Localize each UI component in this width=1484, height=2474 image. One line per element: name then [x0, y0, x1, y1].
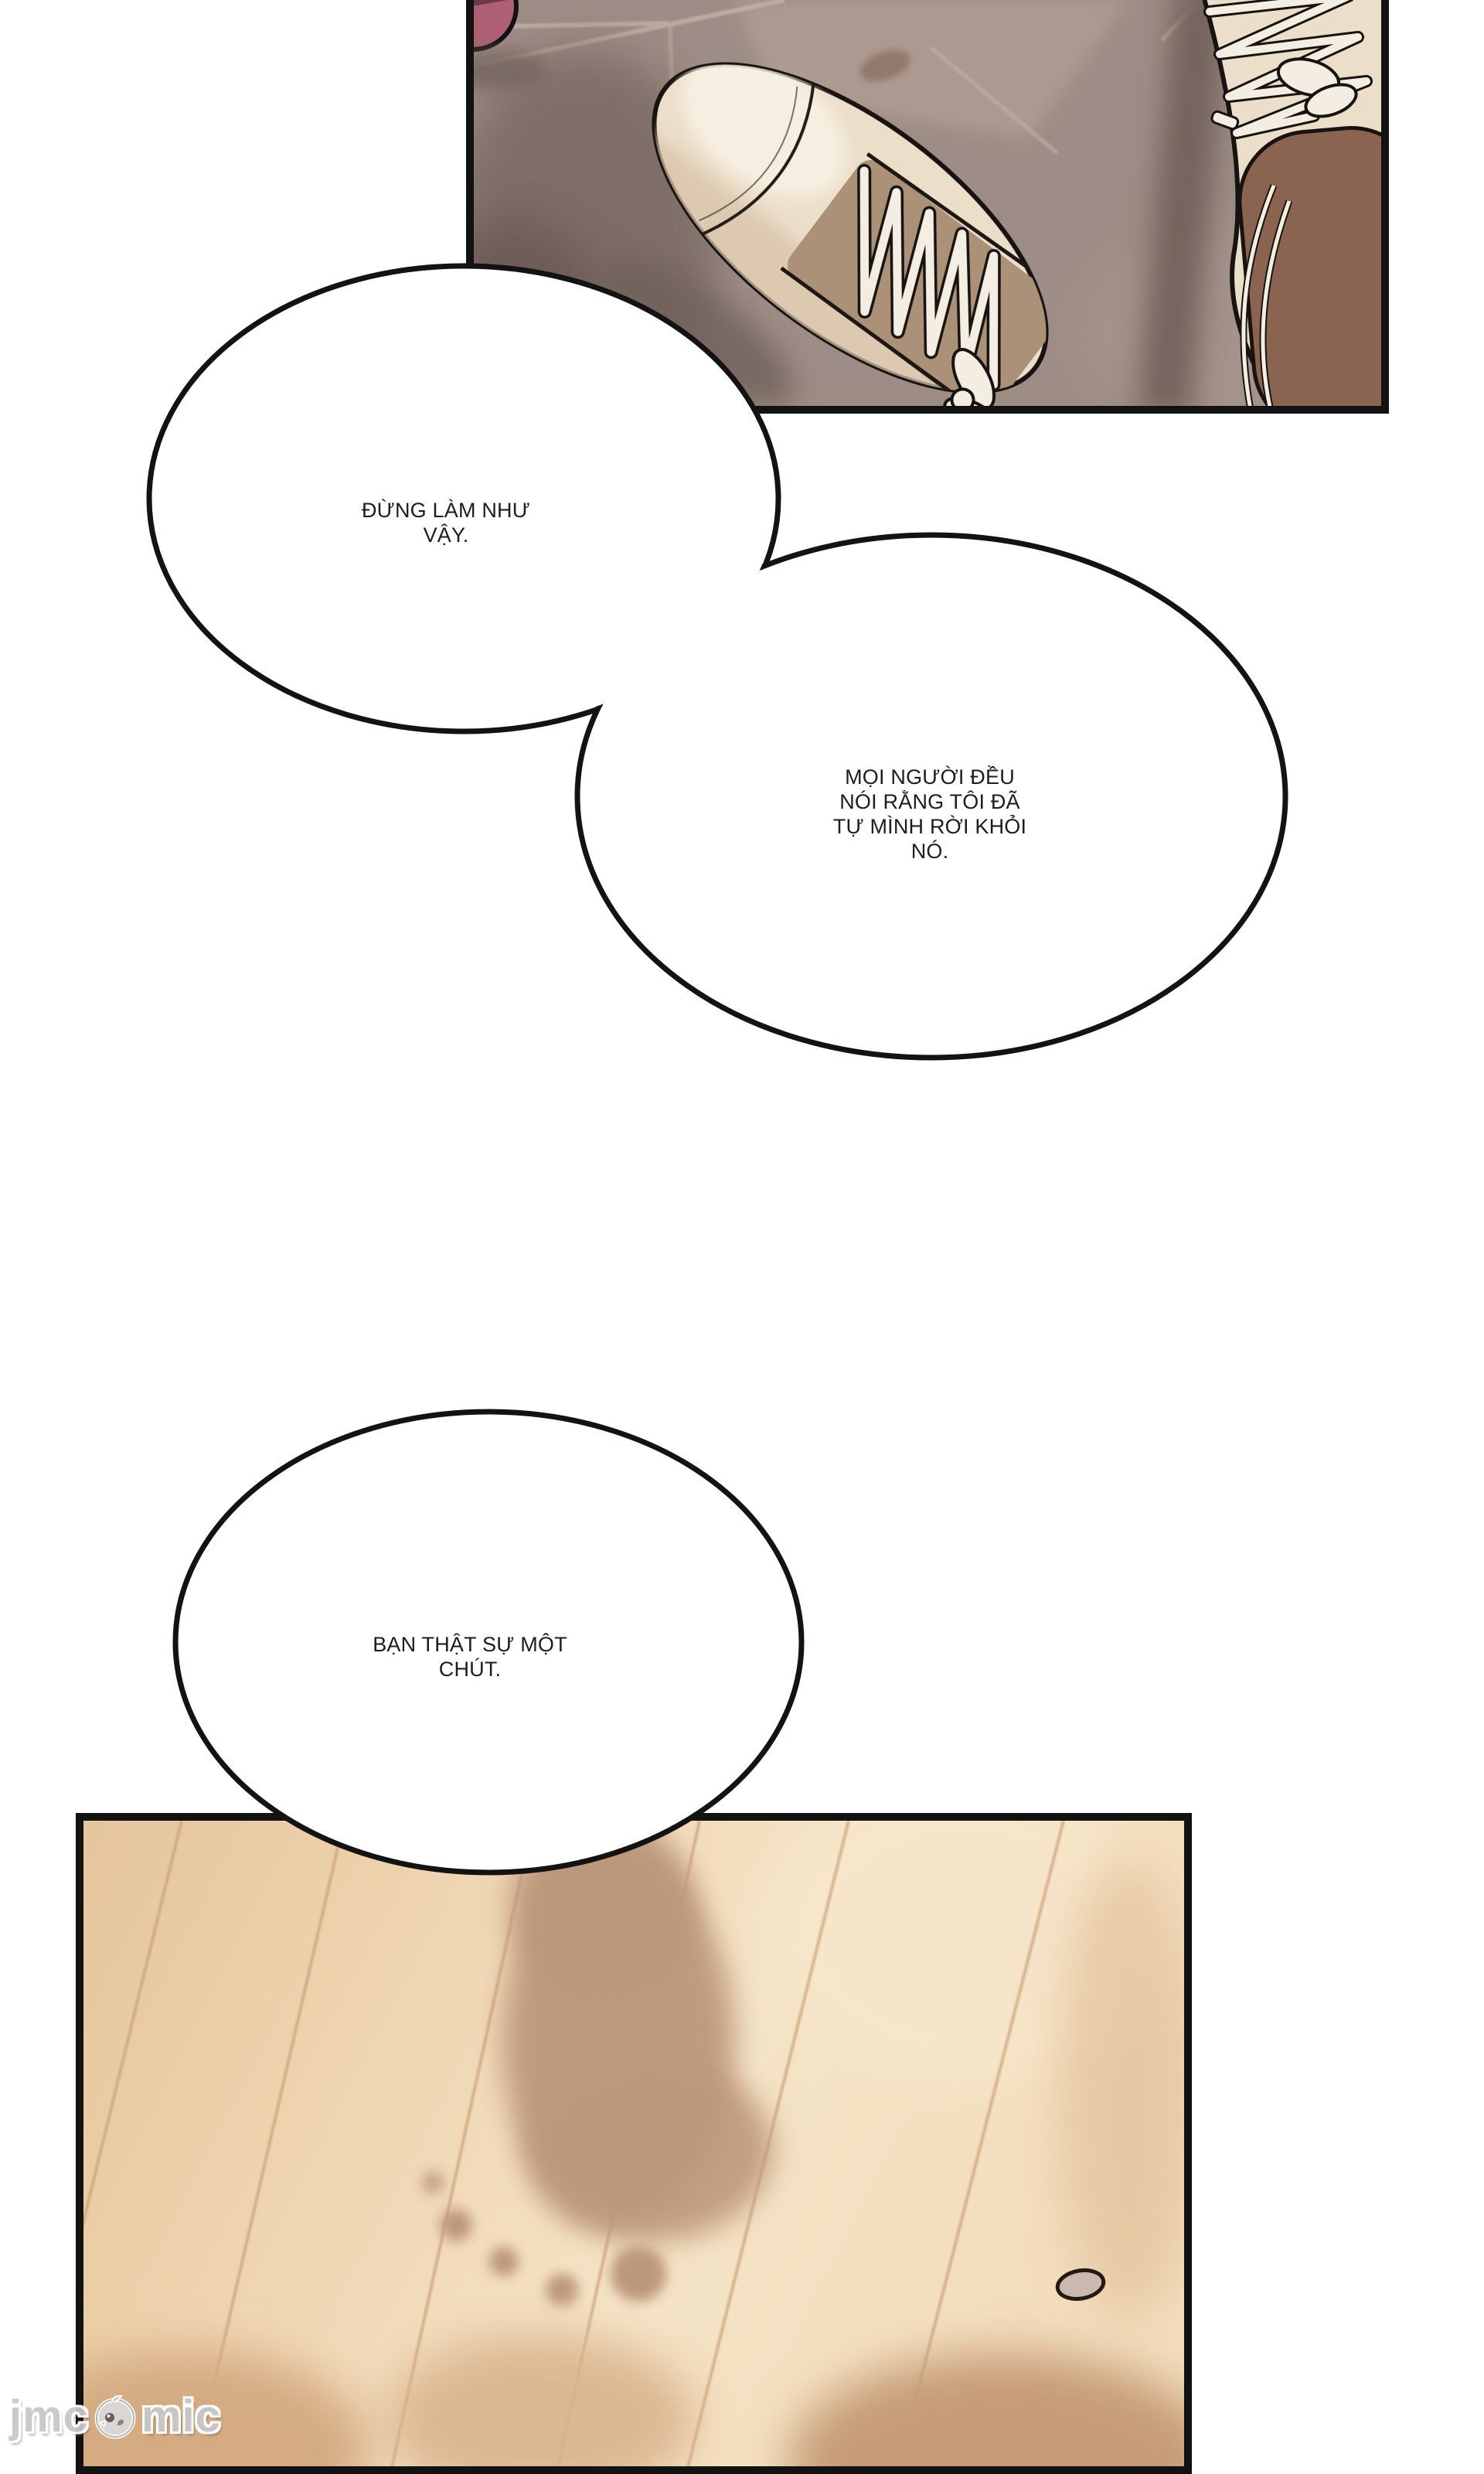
- bubble-2-text: MỌI NGƯỜI ĐỀU NÓI RẰNG TÔI ĐÃ TỰ MÌNH RỜ…: [833, 765, 1026, 864]
- speech-bubbles-layer: [0, 0, 1484, 2474]
- bubble-3-text: BẠN THẬT SỰ MỘT CHÚT.: [373, 1632, 567, 1682]
- watermark: jmc mic: [9, 2391, 221, 2442]
- comic-page: ĐỪNG LÀM NHƯ VẬY. MỌI NGƯỜI ĐỀU NÓI RẰNG…: [0, 0, 1484, 2474]
- bubble-1-text: ĐỪNG LÀM NHƯ VẬY.: [362, 498, 530, 547]
- watermark-text-mic: mic: [141, 2391, 221, 2442]
- watermark-text-jmc: jmc: [9, 2391, 89, 2442]
- chick-mascot-icon: [90, 2392, 140, 2442]
